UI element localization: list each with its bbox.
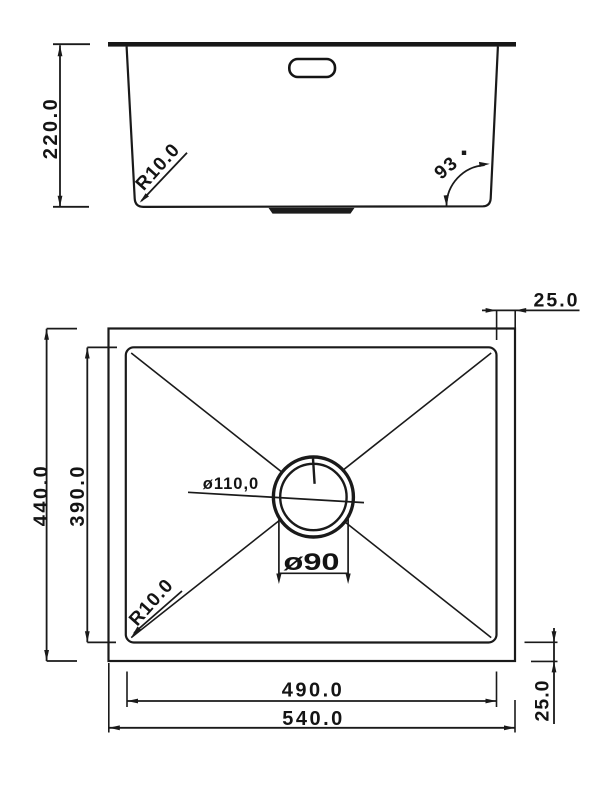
svg-text:25.0: 25.0	[534, 290, 580, 312]
svg-text:490.0: 490.0	[282, 680, 345, 702]
svg-text:ø110,0: ø110,0	[203, 475, 259, 493]
svg-text:ø90: ø90	[284, 549, 340, 576]
svg-text:540.0: 540.0	[282, 708, 345, 730]
svg-text:390.0: 390.0	[67, 464, 89, 527]
svg-text:25.0: 25.0	[532, 680, 554, 722]
svg-text:220.0: 220.0	[40, 97, 62, 160]
svg-text:440.0: 440.0	[30, 464, 52, 527]
